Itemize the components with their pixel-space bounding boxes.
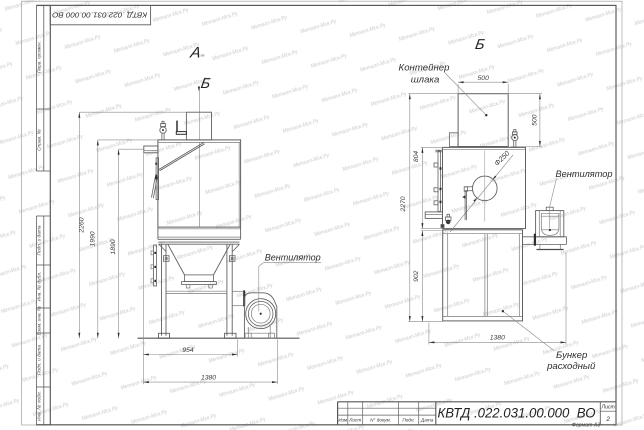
svg-text:Перв. примен.: Перв. примен. bbox=[37, 41, 43, 73]
svg-text:шлака: шлака bbox=[411, 75, 440, 86]
svg-text:804: 804 bbox=[413, 151, 420, 163]
svg-text:Бункер: Бункер bbox=[556, 350, 588, 361]
svg-text:Подп. и дата: Подп. и дата bbox=[37, 345, 43, 375]
svg-text:Инв. № дубл.: Инв. № дубл. bbox=[37, 272, 43, 302]
svg-text:Лист: Лист bbox=[601, 405, 616, 411]
svg-text:Изм: Изм bbox=[338, 417, 347, 422]
svg-text:Подп.: Подп. bbox=[402, 417, 414, 422]
svg-text:Вентилятор: Вентилятор bbox=[556, 169, 614, 180]
svg-text:Инв. № подл.: Инв. № подл. bbox=[37, 391, 43, 421]
svg-text:Формат А3: Формат А3 bbox=[572, 422, 600, 428]
svg-text:N° докум.: N° докум. bbox=[370, 417, 391, 422]
svg-text:расходный: расходный bbox=[546, 361, 596, 372]
svg-text:1380: 1380 bbox=[201, 375, 216, 382]
svg-text:2: 2 bbox=[605, 416, 610, 423]
svg-text:500: 500 bbox=[531, 114, 538, 126]
svg-text:Контейнер: Контейнер bbox=[399, 63, 451, 74]
svg-text:Взам. инв. №: Взам. инв. № bbox=[37, 306, 43, 336]
svg-text:902: 902 bbox=[413, 270, 420, 282]
svg-text:Подп. и дата: Подп. и дата bbox=[37, 225, 43, 255]
svg-text:КВТД .022.031.00.000 ВО: КВТД .022.031.00.000 ВО bbox=[438, 404, 596, 420]
svg-text:КВТД .022.031.00.000 ВО: КВТД .022.031.00.000 ВО bbox=[52, 10, 147, 19]
svg-text:Справ. №: Справ. № bbox=[37, 129, 43, 151]
svg-text:Дата: Дата bbox=[420, 417, 434, 422]
svg-text:Вентилятор: Вентилятор bbox=[265, 253, 322, 264]
svg-text:пв: пв bbox=[201, 54, 205, 58]
svg-text:954: 954 bbox=[182, 347, 194, 354]
svg-text:1890: 1890 bbox=[110, 239, 117, 254]
svg-text:2260: 2260 bbox=[79, 217, 86, 233]
svg-text:Лист: Лист bbox=[348, 417, 361, 422]
svg-text:2270: 2270 bbox=[400, 196, 407, 212]
svg-text:500: 500 bbox=[478, 75, 490, 82]
svg-text:1990: 1990 bbox=[90, 231, 97, 246]
svg-text:1380: 1380 bbox=[490, 335, 505, 342]
